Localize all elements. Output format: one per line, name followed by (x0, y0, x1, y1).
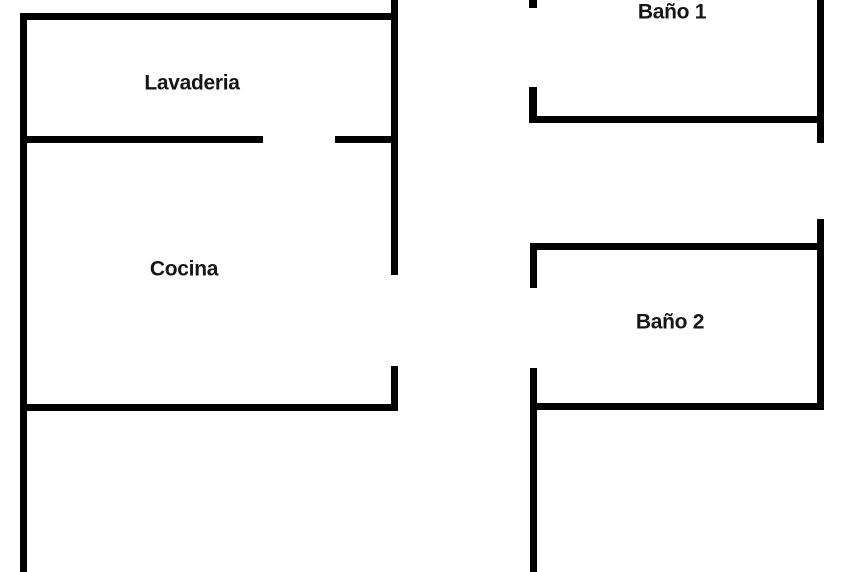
room-label-lavaderia: Lavaderia (144, 71, 239, 94)
wall-segment-bano1-south-wall (529, 116, 824, 123)
wall-segment-bano1-west-wall-tick (529, 0, 537, 8)
wall-segment-bano2-south-wall (531, 403, 824, 410)
wall-segment-left-column-west-wall (20, 13, 27, 572)
room-label-bano-1: Baño 1 (638, 0, 706, 23)
wall-segment-bano2-west-wall-upper (530, 243, 537, 288)
wall-segment-left-column-east-wall-lower (391, 366, 398, 411)
wall-segment-lavaderia-cocina-divider-right (335, 136, 398, 143)
room-label-bano-2: Baño 2 (636, 310, 704, 333)
wall-segment-bano1-east-wall (817, 0, 824, 143)
room-label-cocina: Cocina (150, 257, 218, 280)
wall-segment-lavaderia-cocina-divider-left (20, 136, 263, 143)
wall-segment-bano2-north-wall (531, 243, 824, 250)
wall-segment-bano2-west-wall-lower (530, 368, 537, 572)
wall-segment-left-column-north-wall (20, 13, 398, 20)
floor-plan-canvas: Lavaderia Cocina Baño 1 Baño 2 (0, 0, 850, 572)
wall-segment-cocina-south-wall (20, 404, 398, 411)
